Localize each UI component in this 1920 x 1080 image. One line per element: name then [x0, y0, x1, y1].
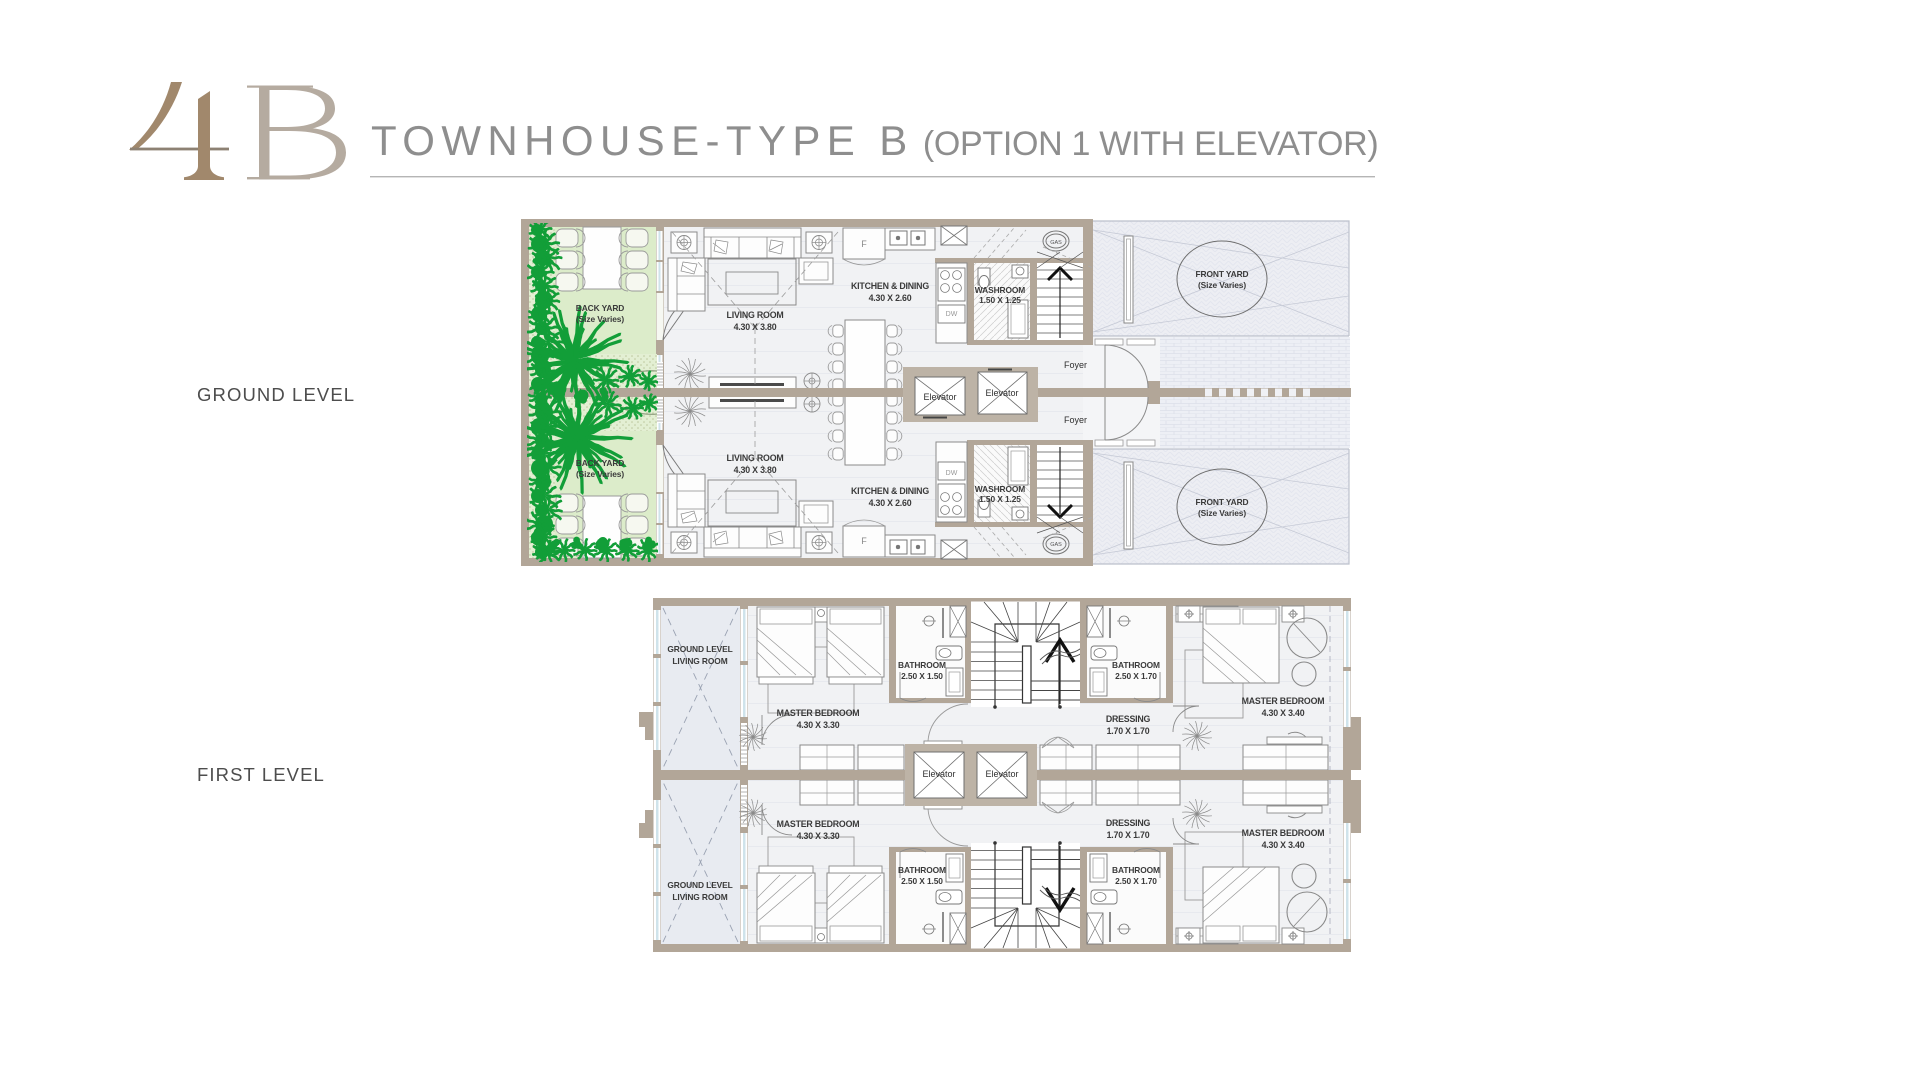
svg-text:(Size Varies): (Size Varies)	[1198, 508, 1246, 518]
svg-text:GROUND LEVEL: GROUND LEVEL	[667, 880, 732, 890]
svg-text:1.70 X 1.70: 1.70 X 1.70	[1107, 726, 1150, 736]
svg-text:BATHROOM: BATHROOM	[1112, 660, 1160, 670]
svg-text:FRONT YARD: FRONT YARD	[1196, 497, 1249, 507]
svg-text:2.50 X 1.70: 2.50 X 1.70	[1115, 671, 1157, 681]
svg-text:WASHROOM: WASHROOM	[975, 484, 1026, 494]
svg-text:BATHROOM: BATHROOM	[1112, 865, 1160, 875]
svg-text:4.30 X 3.80: 4.30 X 3.80	[734, 322, 777, 332]
svg-text:BATHROOM: BATHROOM	[898, 865, 946, 875]
svg-text:1.70 X 1.70: 1.70 X 1.70	[1107, 830, 1150, 840]
svg-text:LIVING ROOM: LIVING ROOM	[672, 892, 727, 902]
svg-text:2.50 X 1.70: 2.50 X 1.70	[1115, 876, 1157, 886]
svg-text:BACK YARD: BACK YARD	[576, 303, 624, 313]
svg-text:MASTER BEDROOM: MASTER BEDROOM	[1242, 828, 1325, 838]
svg-text:KITCHEN & DINING: KITCHEN & DINING	[851, 486, 929, 496]
svg-text:DW: DW	[946, 470, 958, 477]
svg-text:4.30 X 3.80: 4.30 X 3.80	[734, 465, 777, 475]
svg-text:4.30 X 3.30: 4.30 X 3.30	[797, 720, 840, 730]
svg-text:F: F	[861, 536, 867, 546]
svg-text:LIVING ROOM: LIVING ROOM	[727, 453, 784, 463]
svg-text:DW: DW	[946, 311, 958, 318]
svg-text:Elevator: Elevator	[923, 392, 956, 402]
svg-text:LIVING ROOM: LIVING ROOM	[672, 656, 727, 666]
svg-text:(Size Varies): (Size Varies)	[576, 469, 624, 479]
svg-text:F: F	[861, 239, 867, 249]
svg-text:Foyer: Foyer	[1064, 415, 1087, 425]
svg-text:2.50 X 1.50: 2.50 X 1.50	[901, 671, 943, 681]
svg-text:Elevator: Elevator	[922, 769, 955, 779]
svg-text:GAS: GAS	[1050, 542, 1062, 548]
svg-text:BATHROOM: BATHROOM	[898, 660, 946, 670]
svg-text:Elevator: Elevator	[985, 769, 1018, 779]
svg-text:1.50 X 1.25: 1.50 X 1.25	[979, 494, 1021, 504]
svg-text:WASHROOM: WASHROOM	[975, 285, 1026, 295]
svg-text:1.50 X 1.25: 1.50 X 1.25	[979, 295, 1021, 305]
svg-text:4.30 X 3.30: 4.30 X 3.30	[797, 831, 840, 841]
svg-text:DRESSING: DRESSING	[1106, 818, 1151, 828]
svg-text:KITCHEN & DINING: KITCHEN & DINING	[851, 281, 929, 291]
svg-text:4.30 X 3.40: 4.30 X 3.40	[1262, 840, 1305, 850]
svg-text:Foyer: Foyer	[1064, 360, 1087, 370]
svg-text:TOWNHOUSE-TYPE B (OPTION 1 WIT: TOWNHOUSE-TYPE B (OPTION 1 WITH ELEVATOR…	[371, 117, 1378, 164]
svg-text:Elevator: Elevator	[985, 388, 1018, 398]
svg-text:DRESSING: DRESSING	[1106, 714, 1151, 724]
svg-text:GAS: GAS	[1050, 240, 1062, 246]
svg-text:4.30 X 2.60: 4.30 X 2.60	[869, 293, 912, 303]
svg-text:(Size Varies): (Size Varies)	[1198, 280, 1246, 290]
svg-text:BACK YARD: BACK YARD	[576, 458, 624, 468]
svg-text:4.30 X 2.60: 4.30 X 2.60	[869, 498, 912, 508]
svg-text:(Size Varies): (Size Varies)	[576, 314, 624, 324]
svg-text:MASTER BEDROOM: MASTER BEDROOM	[1242, 696, 1325, 706]
svg-text:GROUND LEVEL: GROUND LEVEL	[667, 644, 732, 654]
svg-text:2.50 X 1.50: 2.50 X 1.50	[901, 876, 943, 886]
svg-text:GROUND LEVEL: GROUND LEVEL	[197, 384, 355, 405]
svg-text:FIRST LEVEL: FIRST LEVEL	[197, 764, 325, 785]
svg-text:4.30 X 3.40: 4.30 X 3.40	[1262, 708, 1305, 718]
svg-text:MASTER BEDROOM: MASTER BEDROOM	[777, 819, 860, 829]
svg-text:MASTER BEDROOM: MASTER BEDROOM	[777, 708, 860, 718]
svg-text:FRONT YARD: FRONT YARD	[1196, 269, 1249, 279]
svg-text:LIVING ROOM: LIVING ROOM	[727, 310, 784, 320]
